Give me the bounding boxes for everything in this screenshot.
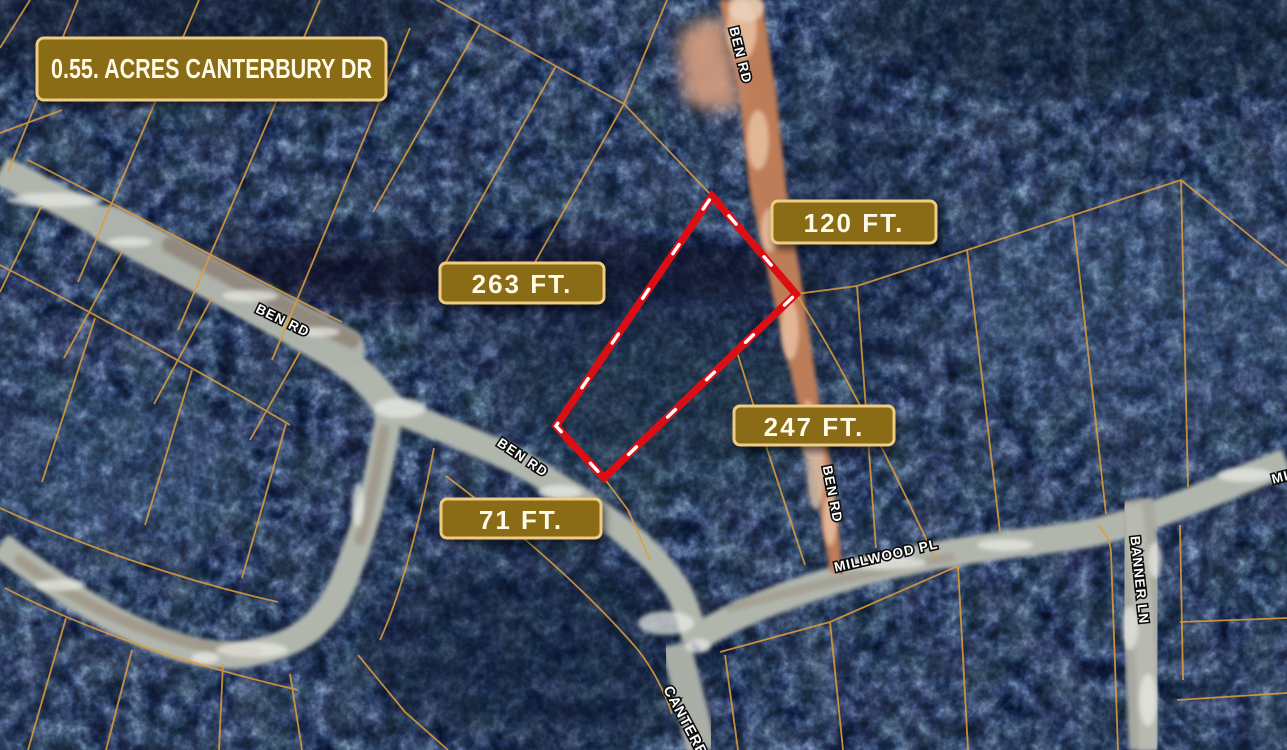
- svg-text:247 FT.: 247 FT.: [764, 412, 865, 442]
- svg-text:263 FT.: 263 FT.: [472, 269, 573, 299]
- svg-text:0.55. ACRES CANTERBURY DR: 0.55. ACRES CANTERBURY DR: [51, 53, 372, 84]
- svg-text:120 FT.: 120 FT.: [804, 208, 905, 238]
- svg-text:71 FT.: 71 FT.: [479, 505, 563, 535]
